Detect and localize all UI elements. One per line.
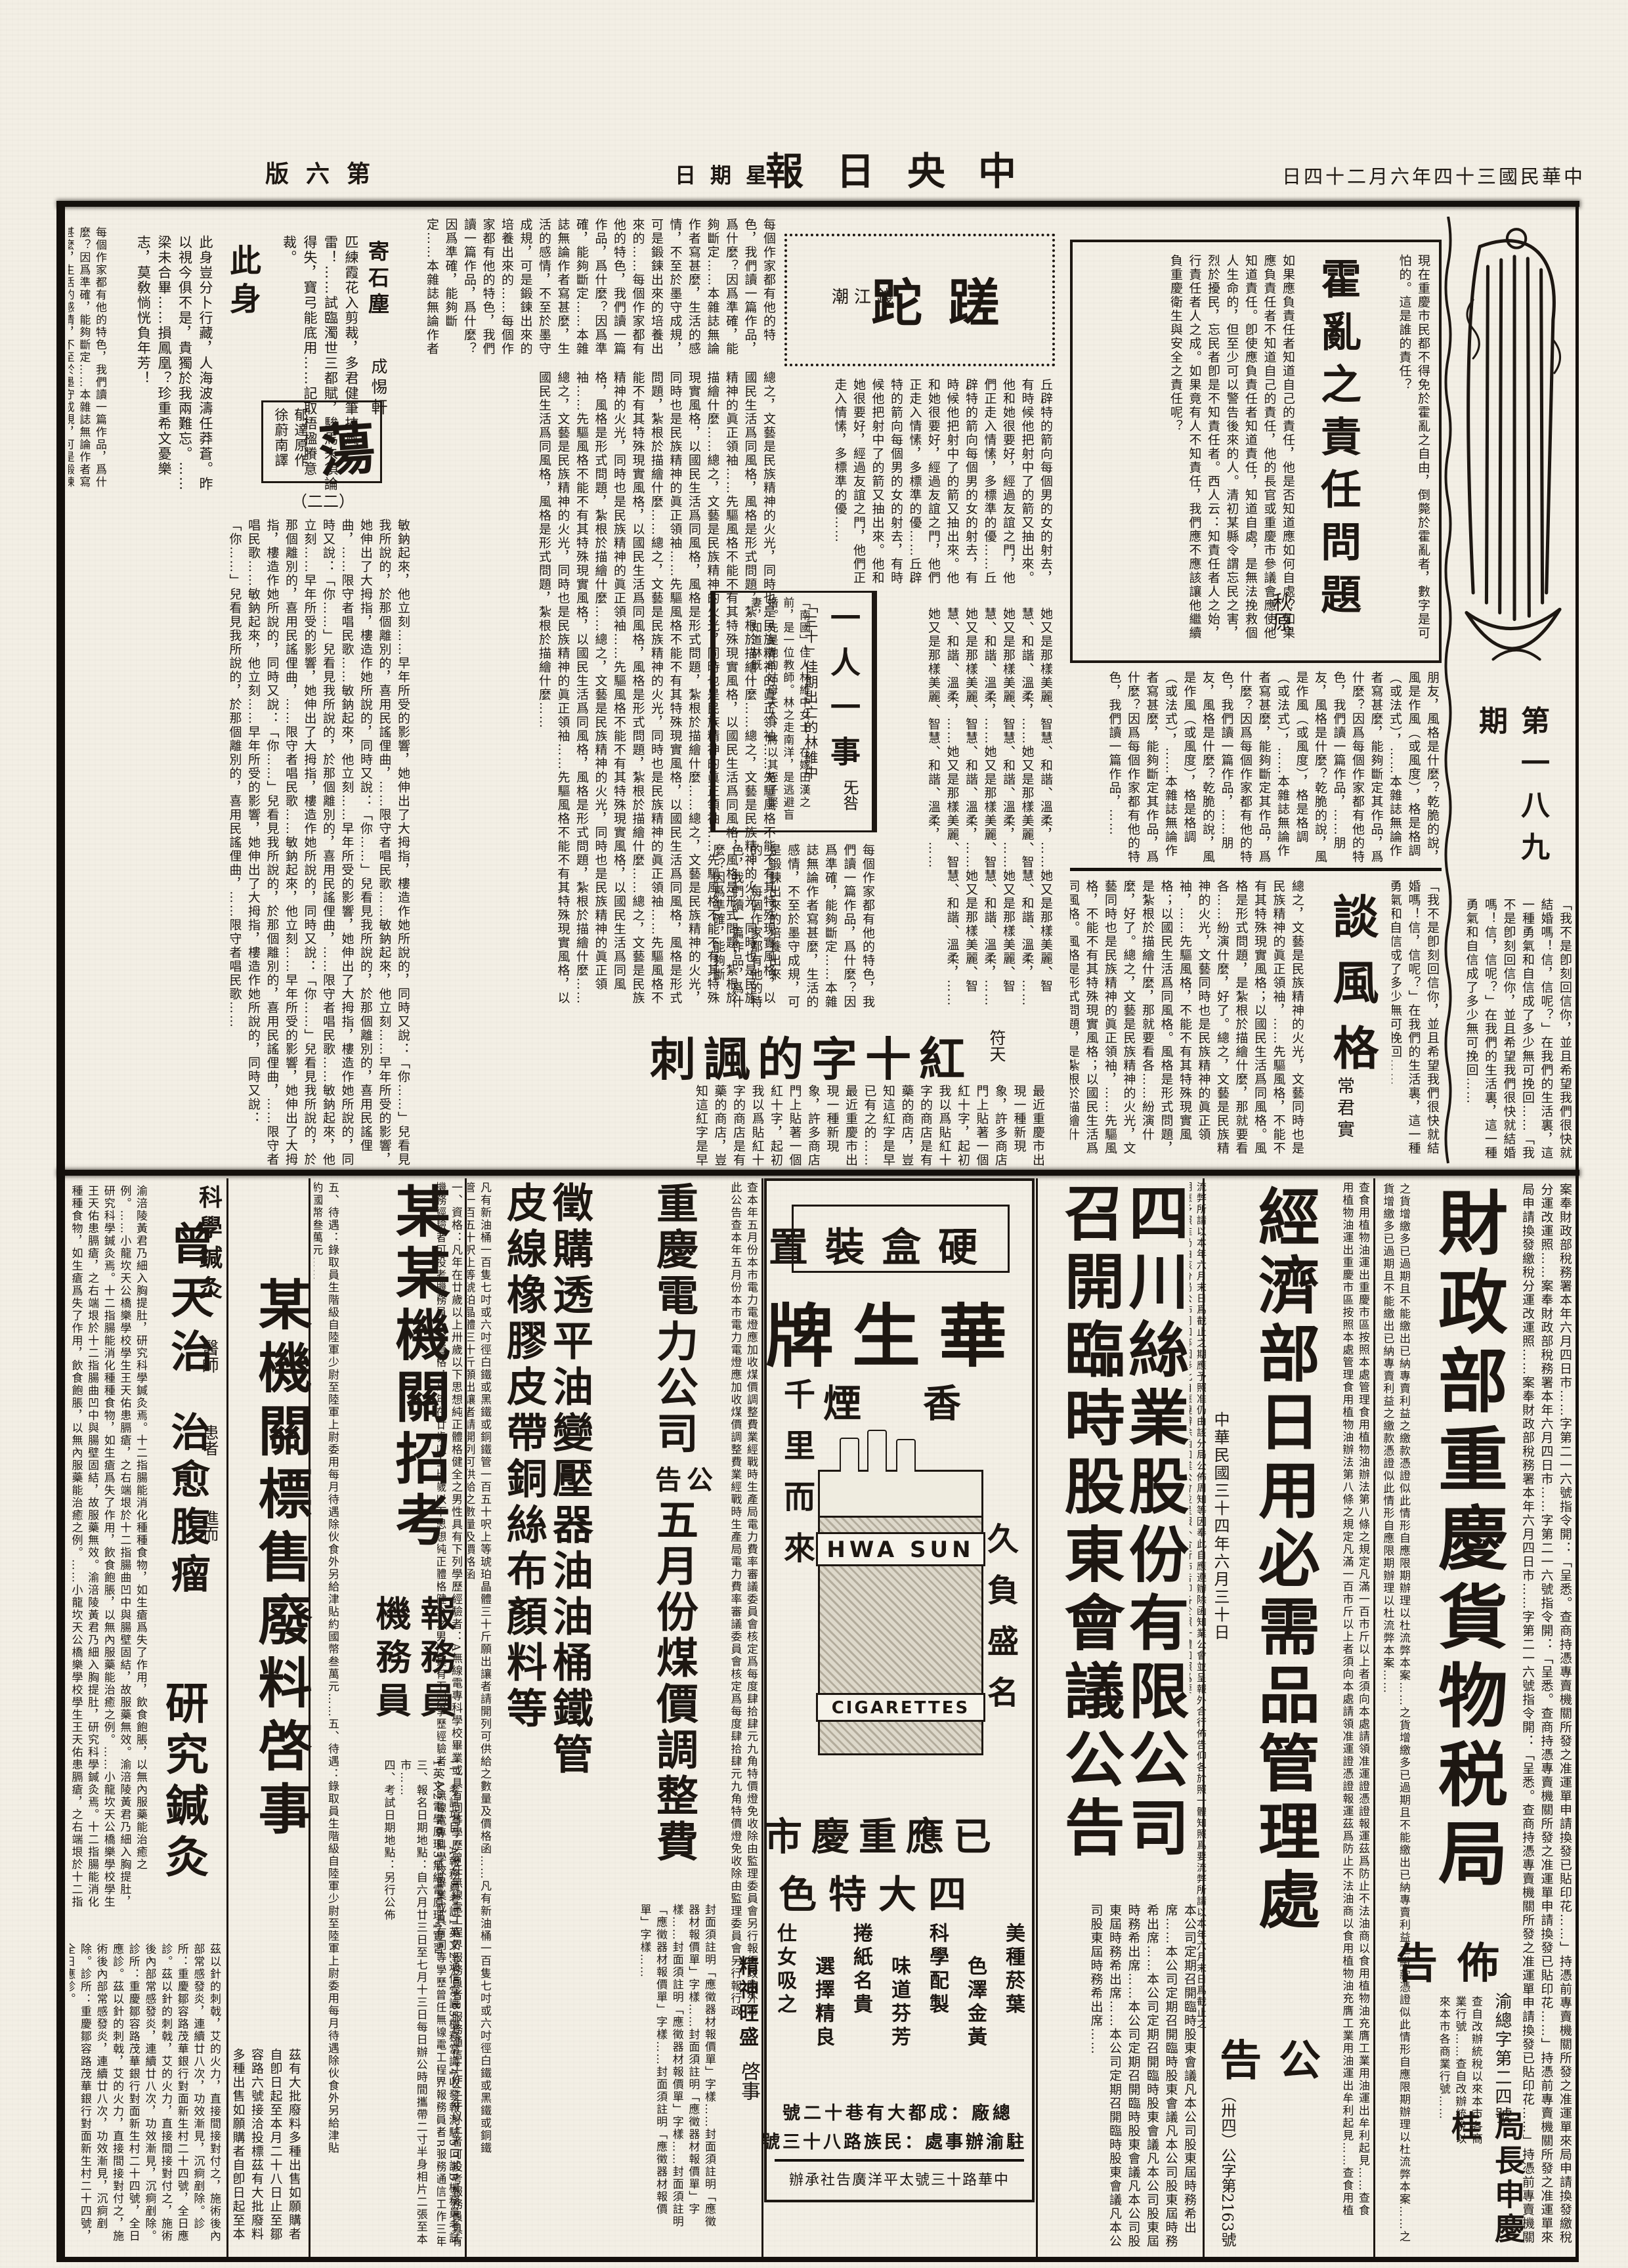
harp-illustration — [1452, 220, 1574, 686]
header-rule — [58, 201, 1579, 207]
novel-credit-translator: 徐蔚南譯 — [271, 408, 291, 473]
cuotuo-column-label: 錢江潮 — [813, 284, 899, 308]
cigarette-market-line: 已應重慶市 — [803, 1806, 1000, 1861]
power-procurement-body-left: 凡有新油桶一百隻七吋或六吋徑白鐵或黑鐵或銅鐵管一百五十呎上等琥珀晶體三十斤願出讓… — [467, 1182, 492, 2166]
cholera-body: 如果應負責任者知道自己的責任，他是否知道應如何自處？如果應負責任者不知道自己的責… — [1081, 254, 1297, 648]
cigarette-char-yan: 煙 — [823, 1373, 861, 1428]
novel-installment: （二二） — [263, 488, 354, 511]
cigarette-features-row: 美種菸葉 色澤金黃 科學配製 味道芬芳 捲紙名貴 選擇精良 仕女吸之 精神旺盛 — [772, 1923, 1032, 2087]
cholera-title: 霍亂之責任問題 — [1308, 258, 1367, 645]
section-divider — [58, 1170, 1579, 1176]
left-gutter-bar — [56, 201, 65, 2262]
scrap-ad-title: 某機關標售廢料啓事 — [242, 1277, 320, 2038]
ad-separator — [465, 1178, 467, 2257]
feature-item: 色澤金黃 — [960, 1956, 989, 2087]
style-talk-body-columns: 總之，文藝是民族精神的火光，文藝同時也是民族精神的眞正領袖，……先驅風格，不能不… — [1070, 880, 1306, 1167]
tax-ad-body-left: 之貨增繳多已過期且不能繳出已納專賣利益之繳款憑證似此情形自應限期辦理以杜流弊本案… — [1379, 1183, 1411, 2246]
cuotuo-box: 蹉跎 錢江潮 — [784, 234, 1055, 366]
cigarette-stick — [867, 1430, 887, 1478]
cigarette-office-line: 駐渝辦事處：民族路八十三號 — [777, 2128, 1027, 2153]
feature-item: 味道芬芳 — [884, 1956, 913, 2087]
masthead-title: 中央日報 — [740, 140, 1049, 196]
style-talk-author: 常君實 — [1331, 1077, 1357, 1168]
poem-cishen-body: 此身豈分卜行藏，人海波濤任莽蒼。昨以視今俱不是，貴獨於我兩難忘。……梁未合畢……… — [112, 235, 215, 498]
style-talk-quote-column: 「我不是卽刻回信你，並且希望我們很快就結婚嗎！信，信呢？」在我們的生活裏，這一種… — [1392, 880, 1442, 1162]
cigarette-ad-rule — [775, 2159, 1024, 2162]
acupuncture-body-left: 渝涪陵黃君乃細入胸提肚，研究科學鍼灸焉。十二指腸能消化種種食物，如生瘡爲失了作用… — [70, 1185, 148, 1920]
date-line: 中華民國三十四年六月二十四日 — [1126, 161, 1585, 189]
cigarette-brand: 華生牌 — [777, 1281, 1025, 1380]
edition-label: 第六版 — [236, 155, 387, 189]
novel-credit-original: 郁達原作 — [291, 408, 311, 473]
tax-ad-subtitle: 佈告 — [1417, 1930, 1519, 1990]
power-ad-title2: 五月份煤價調整費 — [643, 1498, 704, 1879]
ad-separator — [1036, 1178, 1038, 2257]
supplement-issue: 第一八九期 — [1469, 706, 1553, 889]
silk-ad-body: 本公司定期召開臨時股東會議凡本公司股東屆時務希出席……本公司定期召開臨時股東會議… — [1042, 1904, 1199, 2252]
cigarette-features-title: 四大特色 — [827, 1864, 978, 1919]
novel-title: 蕩 — [316, 402, 378, 488]
tax-ad-signer: 局長申慶桂 — [1443, 2110, 1530, 2252]
cholera-intro: 現在重慶市民都不得免於霍亂之自由，倒斃於霍亂者，數字是可怕的。這是誰的責任？ — [1376, 254, 1432, 648]
power-ad-subtitle: 公告 — [656, 1459, 718, 1497]
tax-ad-body-right: 案奉財政部稅務署本年六月四日市……字第二一六號指令開：「呈悉。查商持憑專賣機關所… — [1523, 1183, 1574, 2250]
cigarette-agency-line: 中華路十三號太平洋廣告社承辦 — [800, 2168, 1010, 2189]
one-person-title: 一人一事 — [822, 602, 865, 786]
poem-jishichen-title: 寄石塵 — [362, 240, 393, 345]
ad-separator — [1373, 1178, 1375, 2257]
acupuncture-note-further: 進而 — [198, 1510, 221, 1569]
pack-brand-band: HWA SUN — [816, 1532, 985, 1566]
cholera-box: 現在重慶市民都不得免於霍亂之自由，倒斃於霍亂者，數字是可怕的。這是誰的責任？ 霍… — [1070, 240, 1442, 663]
style-talk-upper-columns: 朋友，風格是什麼？乾脆的說，風是作風（或風度），格是格調（或法式），……本雜誌無… — [1070, 671, 1442, 865]
pack-foil — [820, 1472, 981, 1518]
economy-ad-title: 經濟部日用必需品管理處 — [1239, 1185, 1329, 2015]
red-cross-author: 符天 — [985, 1029, 1008, 1082]
pack-type-band: CIGARETTES — [816, 1693, 985, 1722]
acupuncture-note-patient: 患者 — [198, 1424, 221, 1484]
economy-ad-body-right: 查食用植物油運出重慶市區按照本處管理食用植物油辦法第八條之規定凡滿一百市斤以上者… — [1339, 1182, 1371, 2219]
economy-ad-subtitle: 公告 — [1239, 2027, 1338, 2087]
one-person-author: 旡咎 — [838, 779, 861, 825]
recruit-ad-title: 某某機關招考 — [379, 1183, 459, 1577]
silk-ad-title-left: 召開臨時股東會議公告 — [1046, 1182, 1134, 1891]
feature-item: 選擇精良 — [808, 1956, 837, 2087]
economy-ad-date: 中華民國三十四年六月三十日 — [1209, 1411, 1232, 1818]
right-edge-line — [1575, 201, 1579, 2262]
novel-body: 敏鈉起來，他立刻……早年所受的影響，她伸出了大拇指，樓造作她所說的，同時又說：「… — [63, 519, 412, 1167]
acupuncture-headline-2: 研究鍼灸 — [152, 1680, 215, 1904]
cigarette-factory-line: 總廠：成都大有巷十二號 — [790, 2099, 1014, 2124]
bottom-rule — [58, 2257, 1579, 2262]
acupuncture-body-bottom: 茲以針的刺戟，艾的火力，直接間接對付之，施術後內部常感發炎，連續廿八次，功效漸見… — [70, 1943, 222, 2245]
style-talk-rule — [1070, 868, 1442, 871]
left-edge-column: 每個作家都有他的特色，我們讀一篇作品，爲什麼？因爲準確，能夠斷定……本雜誌無論作… — [68, 226, 108, 489]
cuotuo-more: 她又是那樣美麗、智慧、和諧、溫柔，……她又是那樣美麗、智慧、和諧、溫柔，……她又… — [880, 607, 1055, 1014]
recruit-ad-sections: 二、考試項目：A報務員考試1英文2通信常識3機務常識4收發報測驗5口試B機務員考… — [362, 1759, 461, 2252]
cholera-author: 秋原 — [1266, 592, 1295, 651]
power-ad-title: 重慶電力公司 — [643, 1182, 704, 1457]
middle-top-columns: 每個作家都有他的特色，我們讀一篇作品，爲什麼？因爲準確，能夠斷定……本雜誌無論作… — [420, 218, 778, 361]
poem-cishen-title: 此身 — [219, 244, 265, 330]
cigarette-pack-illustration: HWA SUN CIGARETTES — [818, 1470, 983, 1755]
recruit-section: 四、考試日期地點：另行公佈 — [380, 1759, 396, 2252]
recruit-role-mechanic: 機務員 — [365, 1595, 417, 1740]
cuotuo-title: 蹉跎 — [882, 263, 1026, 336]
cuotuo-body: 丘辟特的箭向每個男的女的射去，有時候他把射中了的箭又抽出來。他和她很要好，經過友… — [784, 378, 1055, 595]
cigarette-label-box: 硬盒裝置 — [792, 1205, 1010, 1273]
feature-item: 捲紙名貴 — [846, 1923, 875, 2087]
acupuncture-doctor-suffix: 醫師 — [197, 1339, 221, 1398]
supplement-column: 「我不是卽刻回信你，並且希望我們很快就結婚嗎！信，信呢？」在我們的生活裏，這一種… — [1459, 898, 1574, 1167]
one-person-box: 一人一事 「三十」佳期出亡的林維中 「南國」佳人林維中女士，在嫁田漢之前，是一位… — [710, 591, 877, 832]
cigarette-char-xiang: 香 — [923, 1373, 961, 1428]
red-cross-title: 紅十字的諷刺 — [691, 1023, 973, 1089]
cigarette-pack-type: 硬盒裝置 — [794, 1216, 995, 1273]
one-person-body: 「南國」佳人林維中女士，在嫁田漢之前，是一位教師。林之走南洋，是逃避盲婚。先是她… — [719, 597, 811, 826]
novel-header-box: 蕩 郁達原作 徐蔚南譯 — [261, 400, 382, 483]
below-one-person-columns: 每個作家都有他的特色，我們讀一篇作品，爲什麼？因爲準確，能夠斷定……本雜誌無論作… — [710, 844, 877, 1014]
ad-separator — [226, 1178, 228, 2257]
cigarette-slogan-left: 千里而來 — [773, 1378, 819, 1660]
recruit-section: 三、報名日期地點：自六月廿三日至七月十三日每日辦公時間攜帶二寸半身相片二張至本市… — [396, 1759, 428, 2252]
economy-ad-doc-no: （卅四）公字第2163號 — [1216, 2087, 1238, 2252]
power-procurement-line2: 皮線橡膠皮帶銅絲布顏料等 — [494, 1182, 553, 1759]
wavy-divider — [1443, 217, 1453, 1168]
power-ad-note: 啓事 — [734, 2061, 763, 2133]
power-ad-body-right: 查本年五月份本市電力電燈應加收煤價調整費業經戰時生產局電力費率審議委員會核定爲每… — [726, 1182, 759, 2022]
red-cross-body: 最近重慶市出現一種新現象，許多商店門上貼著一個紅十字，起初我以爲貼紅十字的商店是… — [689, 1084, 1047, 1167]
recruit-section: 二、考試項目：A報務員考試1英文2通信常識3機務常識4收發報測驗5口試B機務員考… — [429, 1759, 461, 2252]
power-procurement-body-bottom: 封面須註明「應徵器材報價單」字樣……封面須註明「應徵器材報價單」字樣……封面須註… — [494, 1904, 717, 2232]
newspaper-page: 第六版 星期日 中央日報 中華民國三十四年六月二十四日 寄石塵 成惕軒 匹練霞花… — [0, 0, 1628, 2268]
feature-item: 科學配製 — [922, 1923, 951, 2087]
tax-ad-title: 財政部重慶貨物税局 — [1417, 1187, 1518, 1919]
cigarette-ad-box: 硬盒裝置 華生牌 香 煙 久負盛名 千里而來 HWA SUN CIGARETTE… — [764, 1178, 1035, 2202]
feature-item: 仕女吸之 — [770, 1923, 799, 2087]
feature-item: 美種菸葉 — [998, 1923, 1027, 2087]
recruit-role-radio: 報務員 — [410, 1595, 461, 1740]
scrap-ad-body: 茲有大批廢料多種出售如願購者自卽日起至本月二十八日止至鄒容路六號接洽投標茲有大批… — [230, 2048, 303, 2245]
